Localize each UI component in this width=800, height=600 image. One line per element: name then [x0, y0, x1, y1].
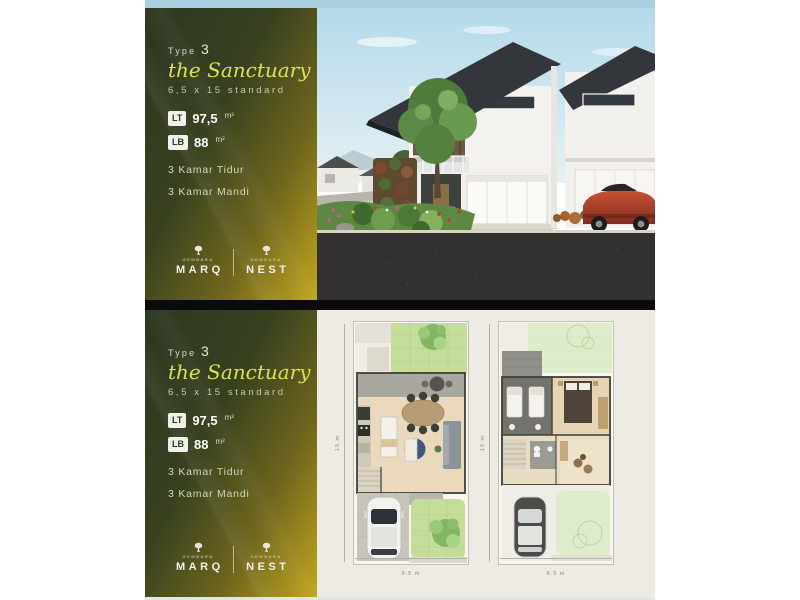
dimension-line: [355, 558, 467, 559]
dimension-width-label: 6.5 m: [547, 571, 566, 577]
type-label: Type: [168, 46, 196, 56]
lb-value: 88: [194, 437, 208, 452]
type-number: 3: [201, 41, 209, 57]
brand-nest: GEMBARA NEST: [243, 245, 290, 276]
lt-unit: m²: [225, 111, 234, 120]
brand-sub-label: GEMBARA: [250, 554, 281, 559]
feature-bedrooms: 3 Kamar Tidur: [168, 164, 309, 176]
dimension-height-label: 15 m: [335, 435, 341, 451]
type-line: Type 3: [168, 41, 309, 57]
house-render-graphic: [317, 8, 655, 300]
spec-lb: LB 88 m²: [168, 135, 309, 150]
dimension-width: 6.5 m: [498, 558, 614, 580]
feature-bedrooms: 3 Kamar Tidur: [168, 466, 309, 478]
promo-slide-exterior: Type 3 the Sanctuary 6,5 x 15 standard L…: [145, 8, 655, 300]
feature-list: 3 Kamar Tidur 3 Kamar Mandi: [168, 164, 309, 198]
dimension-line: [344, 324, 345, 562]
dimension-line: [500, 558, 612, 559]
ghost-car: [514, 497, 546, 557]
floorplan-upper-graphic: [498, 321, 614, 565]
floorplan-ground-graphic: [353, 321, 469, 565]
tree-icon: [261, 542, 272, 553]
slide-separator: [145, 300, 655, 310]
product-name: the Sanctuary: [168, 58, 309, 82]
lb-unit: m²: [215, 135, 224, 144]
dimension-height: 15 m: [340, 321, 350, 565]
brand-logo: GEMBARA MARQ GEMBARA NEST: [145, 542, 317, 573]
spec-lb: LB 88 m²: [168, 437, 309, 452]
lb-badge: LB: [168, 437, 188, 452]
dimension-line: [489, 324, 490, 562]
car-top-view: [364, 497, 404, 559]
slide-column: Type 3 the Sanctuary 6,5 x 15 standard L…: [145, 0, 655, 600]
lt-value: 97,5: [192, 111, 217, 126]
lb-value: 88: [194, 135, 208, 150]
tree-icon: [261, 245, 272, 256]
tree-icon: [193, 245, 204, 256]
floorplan-ground: 15 m: [353, 321, 469, 565]
logo-divider: [233, 249, 234, 276]
brand-sub-label: GEMBARA: [250, 257, 281, 262]
lt-value: 97,5: [192, 413, 217, 428]
dimension-width: 6.5 m: [353, 558, 469, 580]
tree-icon: [193, 542, 204, 553]
brand-sub-label: GEMBARA: [182, 257, 213, 262]
brand-word-marq: MARQ: [173, 561, 224, 573]
type-number: 3: [201, 343, 209, 359]
lb-badge: LB: [168, 135, 188, 150]
dimension-height-label: 15 m: [480, 435, 486, 451]
info-panel: Type 3 the Sanctuary 6,5 x 15 standard L…: [145, 310, 317, 597]
brand-logo: GEMBARA MARQ GEMBARA NEST: [145, 245, 317, 276]
brand-marq: GEMBARA MARQ: [173, 245, 224, 276]
spec-lt: LT 97,5 m²: [168, 111, 309, 126]
size-line: 6,5 x 15 standard: [168, 85, 309, 96]
brochure-page: Type 3 the Sanctuary 6,5 x 15 standard L…: [0, 0, 800, 600]
dimension-height: 15 m: [485, 321, 495, 565]
lt-badge: LT: [168, 413, 186, 428]
panel-body: Type 3 the Sanctuary 6,5 x 15 standard L…: [168, 343, 309, 510]
product-name: the Sanctuary: [168, 360, 309, 384]
brand-word-nest: NEST: [243, 561, 290, 573]
floorplans-area: 15 m: [317, 310, 655, 597]
brand-word-marq: MARQ: [173, 264, 224, 276]
brand-marq: GEMBARA MARQ: [173, 542, 224, 573]
brand-word-nest: NEST: [243, 264, 290, 276]
logo-divider: [233, 546, 234, 573]
house-render: [317, 8, 655, 300]
brand-sub-label: GEMBARA: [182, 554, 213, 559]
size-line: 6,5 x 15 standard: [168, 387, 309, 398]
top-sky-strip: [145, 0, 655, 8]
lt-badge: LT: [168, 111, 186, 126]
feature-list: 3 Kamar Tidur 3 Kamar Mandi: [168, 466, 309, 500]
dimension-width-label: 6.5 m: [402, 571, 421, 577]
promo-slide-floorplan: Type 3 the Sanctuary 6,5 x 15 standard L…: [145, 310, 655, 597]
spec-lt: LT 97,5 m²: [168, 413, 309, 428]
feature-bathrooms: 3 Kamar Mandi: [168, 488, 309, 500]
lt-unit: m²: [225, 413, 234, 422]
floorplan-upper: 15 m: [498, 321, 614, 565]
info-panel: Type 3 the Sanctuary 6,5 x 15 standard L…: [145, 8, 317, 300]
type-label: Type: [168, 348, 196, 358]
brand-nest: GEMBARA NEST: [243, 542, 290, 573]
panel-body: Type 3 the Sanctuary 6,5 x 15 standard L…: [168, 41, 309, 208]
lb-unit: m²: [215, 437, 224, 446]
type-line: Type 3: [168, 343, 309, 359]
feature-bathrooms: 3 Kamar Mandi: [168, 186, 309, 198]
